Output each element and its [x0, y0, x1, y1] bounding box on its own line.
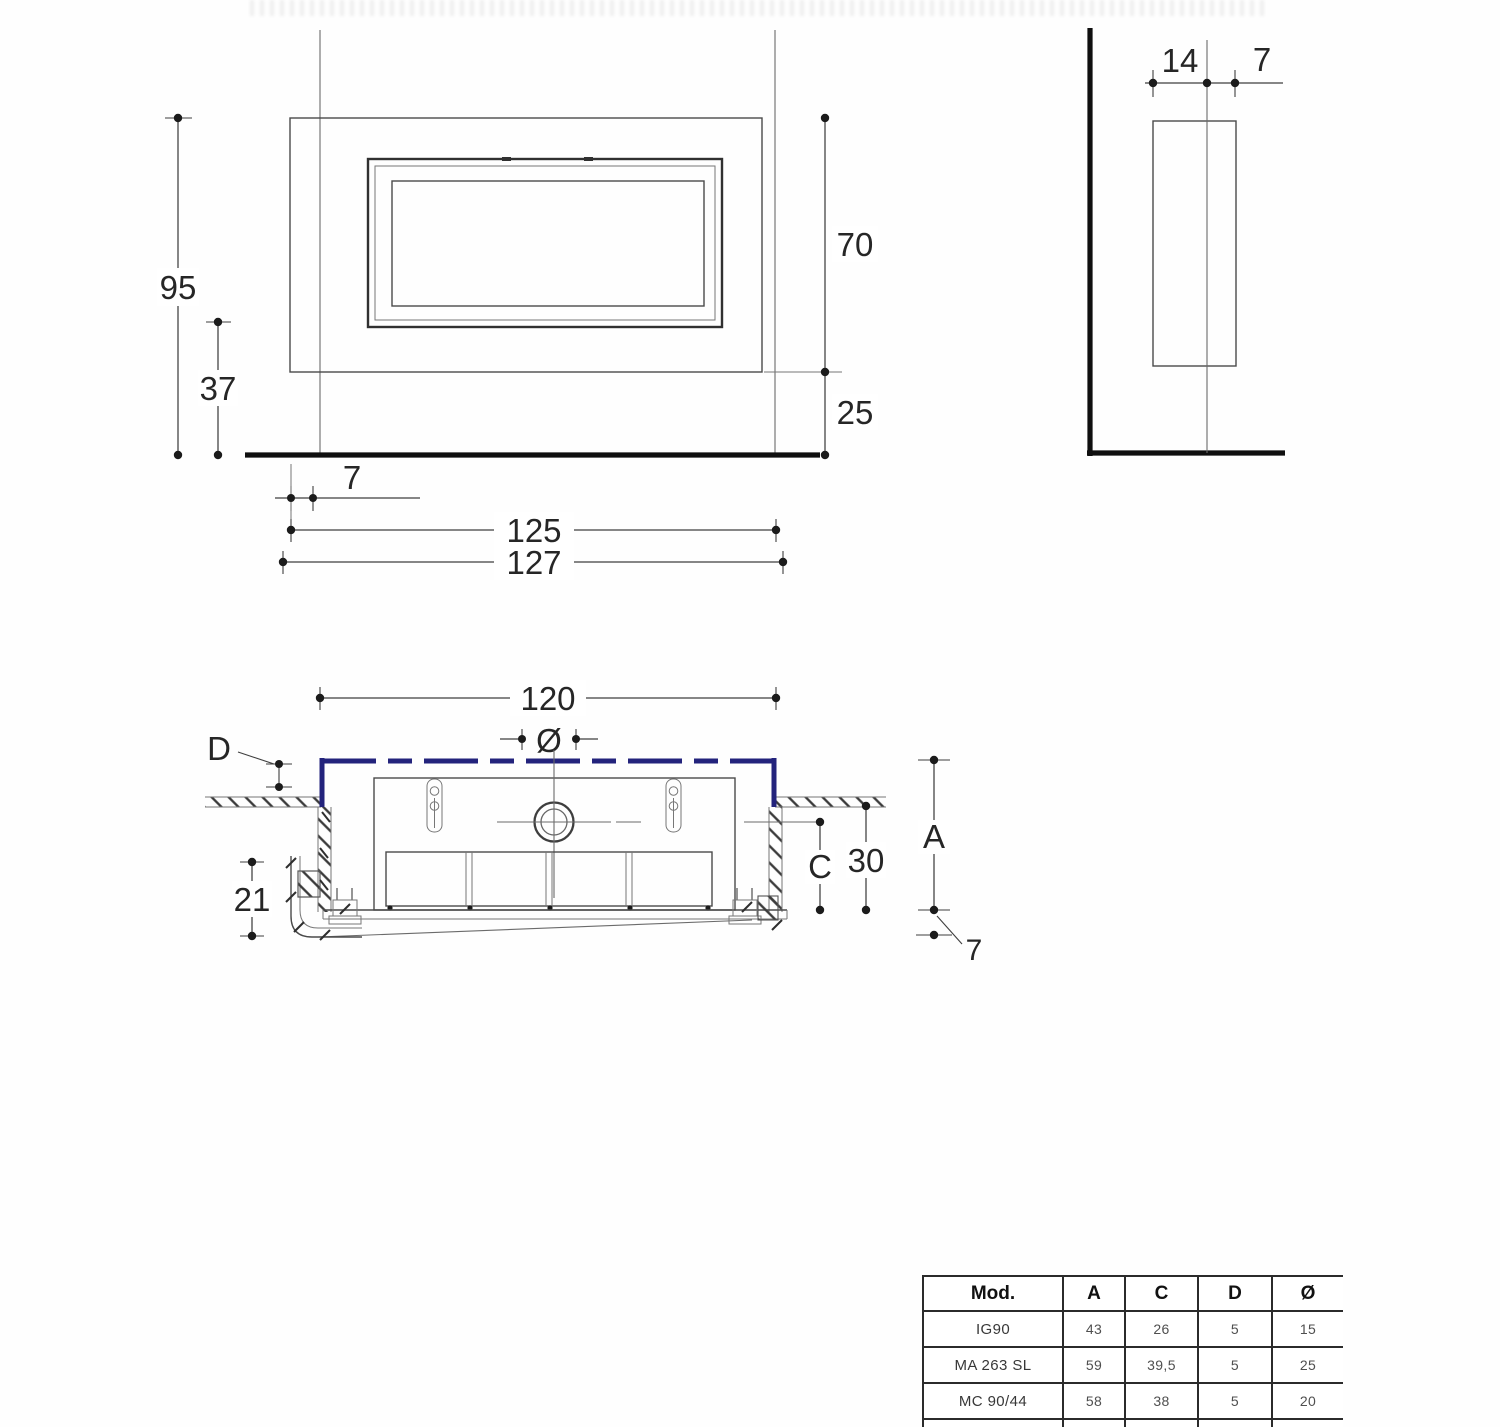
table-cell-model: IG90: [923, 1311, 1063, 1347]
niche-outline-blue: [322, 758, 774, 807]
table-cell-d: 5: [1198, 1347, 1272, 1383]
front-frame-band: [318, 910, 787, 937]
table-cell-a: 58: [1063, 1383, 1125, 1419]
scanned-installation-diagram: 95 37 70 25 7: [0, 0, 1500, 1427]
table-header-c: C: [1125, 1276, 1198, 1311]
table-cell-dia: 15: [1272, 1311, 1343, 1347]
mounting-bracket-left: [427, 779, 442, 832]
table-cell-a: 59: [1063, 1347, 1125, 1383]
dim-side-offset: 7: [343, 459, 361, 496]
window-frame-mid: [375, 166, 715, 320]
dim-depth-recessed: 14: [1162, 42, 1199, 79]
dim-niche-depth: 30: [848, 842, 885, 879]
table-row-cutoff: [923, 1419, 1343, 1427]
dim-frame-depth: 21: [234, 881, 271, 918]
dim-depth-proud: 7: [1253, 41, 1271, 78]
table-row: MC 90/44 58 38 5 20: [923, 1383, 1343, 1419]
window-glass: [392, 181, 704, 306]
table-cell-model: MC 90/44: [923, 1383, 1063, 1419]
dim-label-c: C: [808, 848, 832, 885]
table-cell-d: 5: [1198, 1311, 1272, 1347]
mounting-bracket-right: [666, 779, 681, 832]
dim-height-base: 25: [837, 394, 874, 431]
table-cell-c: 26: [1125, 1311, 1198, 1347]
frame-tick-2: [584, 157, 593, 161]
table-row: IG90 43 26 5 15: [923, 1311, 1343, 1347]
window-frame-outer: [368, 159, 722, 327]
plan-view: 120 Ø D: [205, 680, 982, 967]
side-view: 14 7: [1087, 28, 1285, 456]
dim-front-offset: 7: [966, 934, 983, 967]
table-header-dia: Ø: [1272, 1276, 1343, 1311]
burner-strip: [386, 852, 712, 911]
table-cell-c: 39,5: [1125, 1347, 1198, 1383]
table-cell-c: 38: [1125, 1383, 1198, 1419]
table-header-d: D: [1198, 1276, 1272, 1311]
dim-flue-diameter-symbol: Ø: [536, 722, 562, 759]
table-header-row: Mod. A C D Ø: [923, 1276, 1343, 1311]
table-cell-a: 43: [1063, 1311, 1125, 1347]
table-cell-dia: 25: [1272, 1347, 1343, 1383]
dim-label-d: D: [207, 730, 231, 767]
frame-tick-1: [502, 157, 511, 161]
table-header-mod: Mod.: [923, 1276, 1063, 1311]
dim-height-total: 95: [160, 269, 197, 306]
dim-width-outer: 127: [506, 544, 561, 581]
model-spec-table: Mod. A C D Ø IG90 43 26 5 15 MA 263 SL 5…: [922, 1275, 1343, 1427]
front-panel-outline: [290, 118, 762, 372]
table-cell-dia: 20: [1272, 1383, 1343, 1419]
table-cell-model: MA 263 SL: [923, 1347, 1063, 1383]
dim-label-a: A: [923, 818, 945, 855]
insert-side-outline: [1153, 121, 1236, 366]
technical-drawing: 95 37 70 25 7: [0, 0, 1500, 1427]
dim-niche-width: 120: [520, 680, 575, 717]
wall-hatch-left: [205, 797, 321, 807]
table-row: MA 263 SL 59 39,5 5 25: [923, 1347, 1343, 1383]
dim-height-lower: 37: [200, 370, 237, 407]
dim-height-opening: 70: [837, 226, 874, 263]
front-view: 95 37 70 25 7: [157, 30, 878, 581]
table-header-a: A: [1063, 1276, 1125, 1311]
table-cell-d: 5: [1198, 1383, 1272, 1419]
